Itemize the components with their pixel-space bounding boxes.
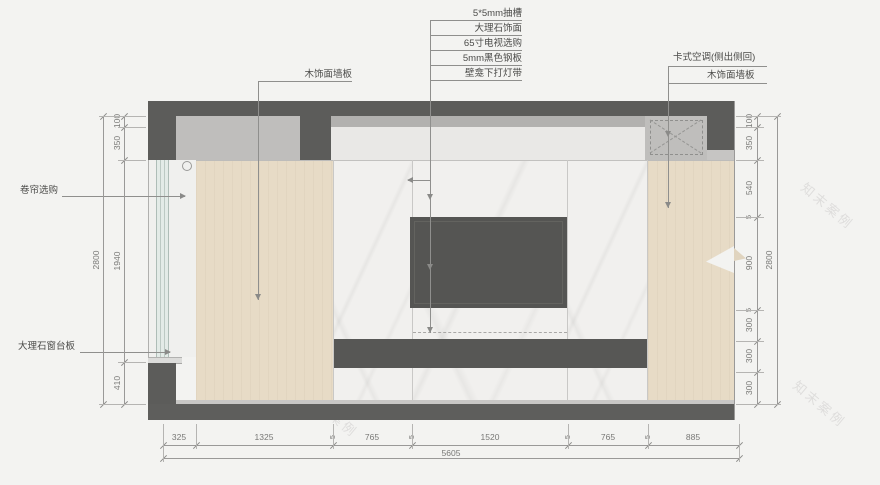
extension-line [333, 424, 334, 449]
dim-label: 765 [352, 432, 392, 442]
leader-arrow [665, 202, 671, 208]
niche-light-strip-dashed [413, 332, 567, 333]
dim-label: 1940 [112, 241, 122, 281]
dim-label: 765 [588, 432, 628, 442]
leader-underline [430, 65, 522, 66]
label-wood-panel-left: 木饰面墙板 [252, 69, 352, 81]
leader-underline [430, 35, 522, 36]
leader-underline [668, 66, 767, 67]
leader-underline [430, 50, 522, 51]
leader-arrow [255, 294, 261, 300]
dim-line-right-total [777, 116, 778, 404]
extension-line [118, 160, 146, 161]
extension-line [739, 424, 740, 462]
leader-underline [668, 83, 767, 84]
extension-line [736, 372, 764, 373]
label-roller-blind: 卷帘选购 [20, 185, 58, 197]
label-wood-panel-right: 木饰面墙板 [707, 70, 755, 82]
glass-pane-line [160, 160, 161, 357]
extension-line [196, 424, 197, 449]
extension-line [99, 404, 146, 405]
leader-drop-wood-left [258, 81, 259, 300]
dim-label: 1325 [244, 432, 284, 442]
dim-label: 1520 [470, 432, 510, 442]
left-bulkhead [148, 101, 176, 160]
label-tv: 65寸电视选购 [350, 38, 522, 50]
dim-line-bottom-total [163, 458, 739, 459]
extension-line [736, 160, 764, 161]
dim-label: 5605 [431, 448, 471, 458]
elevation-drawing-canvas: 知末案例 知末案例 知末案例 知末案例 知末案例 5*5mm抽槽 [0, 0, 880, 485]
black-steel-band [334, 339, 647, 368]
dim-label: 410 [112, 363, 122, 403]
ceiling-slab-band [148, 101, 734, 116]
extension-line [648, 424, 649, 449]
ceiling-reveal-strip [331, 116, 645, 127]
label-cassette-ac: 卡式空调(侧出侧回) [673, 52, 755, 64]
upper-white-band [331, 127, 645, 161]
leader-arrow [165, 349, 171, 355]
extension-line [736, 127, 764, 128]
dim-line-left-total [103, 116, 104, 404]
leader-arrow [665, 131, 671, 137]
label-niche-light: 壁龛下打灯带 [350, 68, 522, 80]
dim-label: 2800 [764, 240, 774, 280]
dim-label: 325 [159, 432, 199, 442]
dim-label: 885 [673, 432, 713, 442]
extension-line [118, 362, 146, 363]
right-bulkhead [707, 101, 734, 150]
leader-marble-sill [80, 352, 170, 353]
cassette-ac-hidden-outline [650, 120, 703, 155]
leader-underline [258, 81, 352, 82]
label-marble-sill: 大理石窗台板 [18, 341, 75, 353]
label-groove: 5*5mm抽槽 [350, 8, 522, 20]
detail-marker-circle [182, 161, 192, 171]
watermark: 知末案例 [797, 178, 858, 234]
glass-pane-line [164, 160, 165, 357]
label-marble-finish: 大理石饰面 [350, 23, 522, 35]
leader-arrow [407, 177, 413, 183]
right-recess-band [707, 150, 734, 160]
dim-label: 350 [744, 123, 754, 163]
dim-label: 300 [744, 368, 754, 408]
leader-underline [430, 80, 522, 81]
tv-niche [410, 217, 567, 308]
extension-line [736, 217, 764, 218]
leader-drop-right [668, 66, 669, 208]
extension-line [736, 341, 764, 342]
leader-drop-center [430, 20, 431, 333]
leader-arrow [427, 327, 433, 333]
dim-label: 2800 [91, 240, 101, 280]
middle-bulkhead [300, 101, 331, 160]
extension-line [736, 404, 781, 405]
extension-line [118, 127, 146, 128]
dim-label: 900 [744, 243, 754, 283]
leader-underline [430, 20, 522, 21]
extension-line [736, 310, 764, 311]
extension-line [736, 116, 781, 117]
panel-groove [647, 160, 648, 400]
wood-panel-right [648, 160, 734, 401]
leader-arrow [180, 193, 186, 199]
curtain-pocket-recess [176, 116, 300, 160]
leader-arrow [427, 264, 433, 270]
watermark: 知末案例 [789, 376, 850, 432]
extension-line [99, 116, 146, 117]
tv-outline [414, 221, 563, 304]
label-steel-plate: 5mm黑色钢板 [350, 53, 522, 65]
extension-line [412, 424, 413, 449]
extension-line [163, 424, 164, 462]
window-glass [156, 160, 169, 357]
under-sill-wall [148, 363, 176, 404]
wood-panel-left [196, 160, 333, 401]
leader-arrow [427, 194, 433, 200]
extension-line [568, 424, 569, 449]
